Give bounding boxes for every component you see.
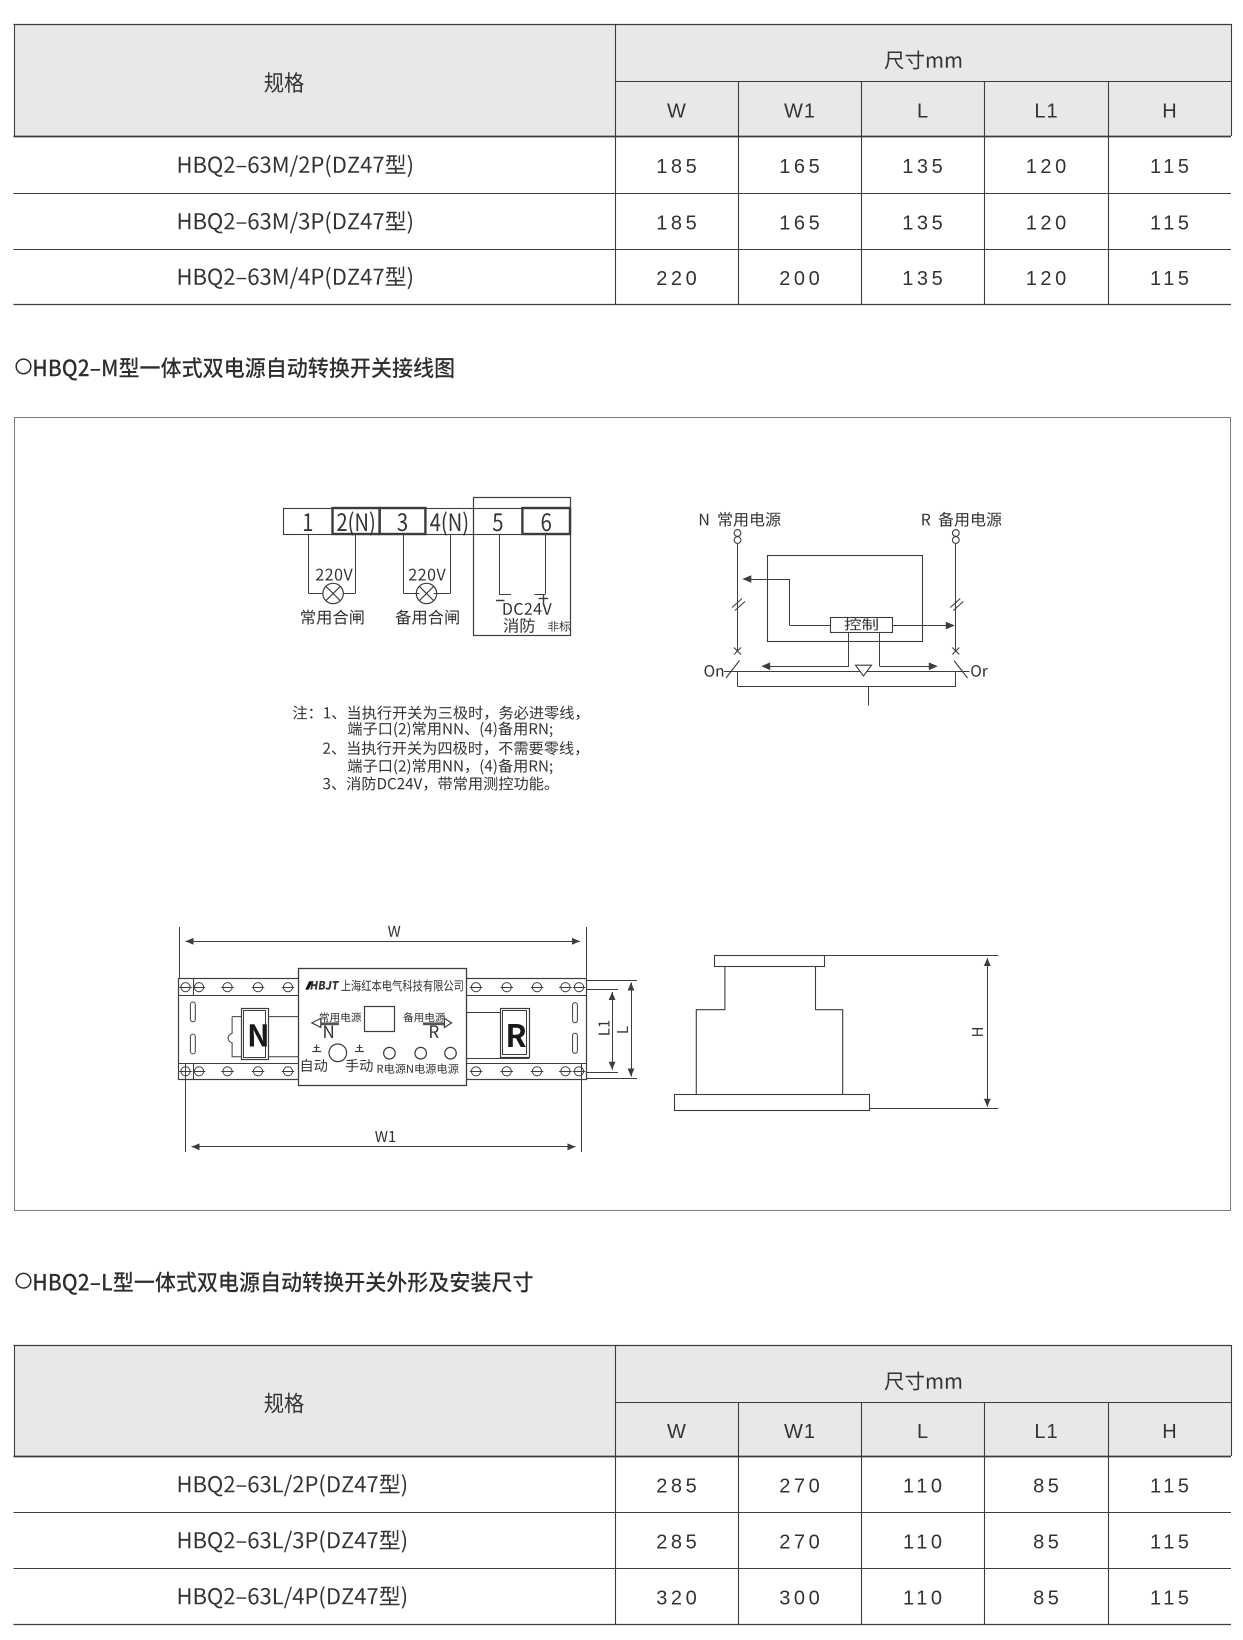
svg-text:110: 110 <box>903 1531 946 1553</box>
svg-text:135: 135 <box>902 156 946 178</box>
svg-text:L: L <box>917 1421 929 1443</box>
svg-text:W1: W1 <box>784 1421 816 1443</box>
svg-text:285: 285 <box>656 1531 700 1553</box>
svg-text:165: 165 <box>779 212 823 234</box>
svg-text:H: H <box>1162 101 1177 123</box>
svg-text:85: 85 <box>1033 1475 1062 1497</box>
svg-text:85: 85 <box>1033 1531 1062 1553</box>
svg-text:270: 270 <box>779 1531 823 1553</box>
svg-text:115: 115 <box>1150 1475 1193 1497</box>
svg-text:115: 115 <box>1150 156 1193 178</box>
svg-text:120: 120 <box>1026 268 1070 290</box>
svg-text:H: H <box>1162 1421 1177 1443</box>
svg-text:L: L <box>917 101 929 123</box>
svg-text:135: 135 <box>902 212 946 234</box>
svg-text:185: 185 <box>656 156 700 178</box>
svg-text:85: 85 <box>1033 1587 1062 1609</box>
svg-text:L1: L1 <box>1034 101 1058 123</box>
svg-text:110: 110 <box>903 1587 946 1609</box>
svg-text:320: 320 <box>656 1587 700 1609</box>
svg-text:115: 115 <box>1150 1587 1193 1609</box>
svg-text:120: 120 <box>1026 156 1070 178</box>
svg-text:115: 115 <box>1150 268 1193 290</box>
svg-text:110: 110 <box>903 1475 946 1497</box>
svg-text:220: 220 <box>656 268 700 290</box>
svg-text:185: 185 <box>656 212 700 234</box>
svg-text:200: 200 <box>779 268 823 290</box>
svg-text:270: 270 <box>779 1475 823 1497</box>
svg-text:165: 165 <box>779 156 823 178</box>
svg-text:115: 115 <box>1150 1531 1193 1553</box>
svg-text:W: W <box>667 101 687 123</box>
svg-text:285: 285 <box>656 1475 700 1497</box>
svg-text:L1: L1 <box>1034 1421 1058 1443</box>
svg-text:W: W <box>667 1421 687 1443</box>
svg-text:120: 120 <box>1026 212 1070 234</box>
svg-text:W1: W1 <box>784 101 816 123</box>
svg-text:300: 300 <box>779 1587 823 1609</box>
svg-text:115: 115 <box>1150 212 1193 234</box>
svg-text:135: 135 <box>902 268 946 290</box>
